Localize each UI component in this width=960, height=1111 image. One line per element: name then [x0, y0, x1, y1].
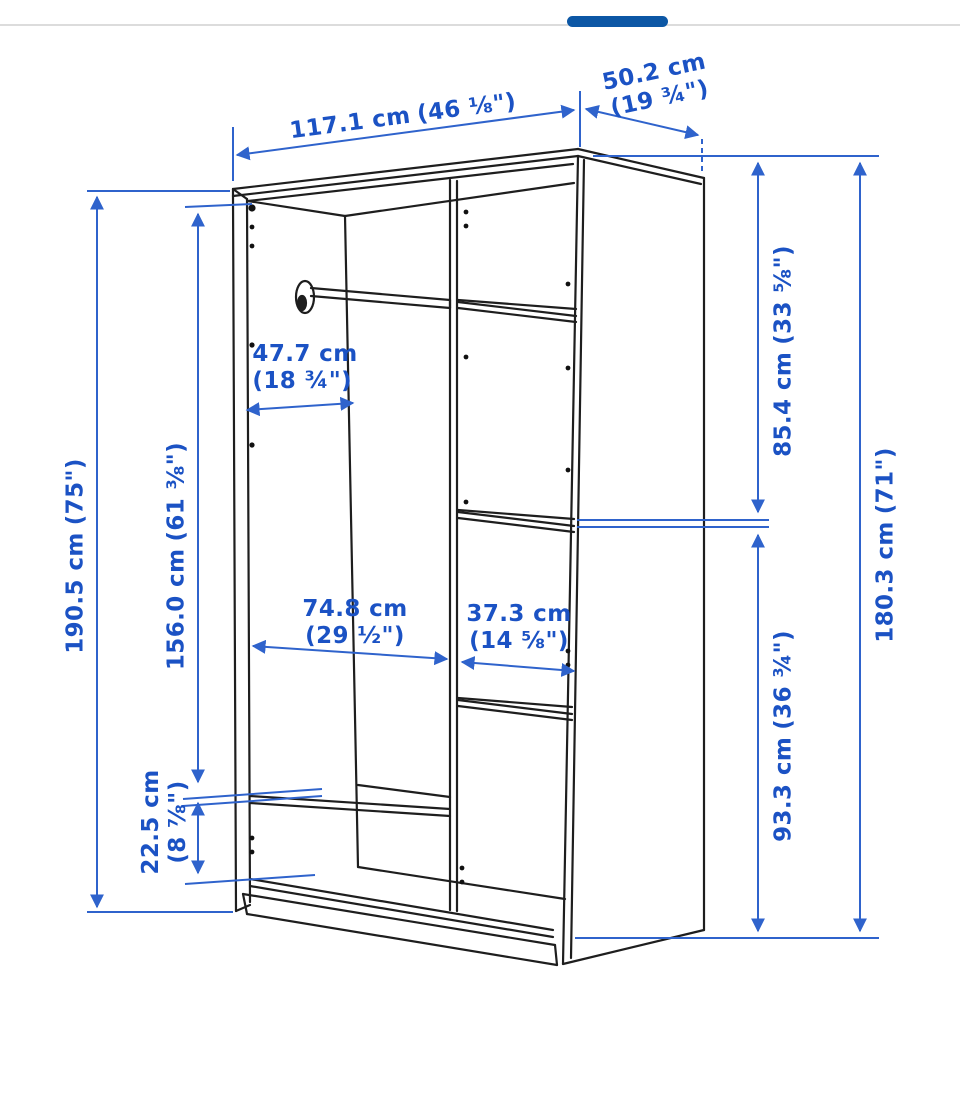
shelf-top	[458, 300, 576, 322]
dim-label-side-height: 180.3 cm(71")	[872, 447, 899, 643]
wardrobe-outline	[233, 149, 704, 965]
shelf-middle	[458, 510, 574, 532]
dim-label-right-section-width: 37.3 cm (14 ⅝")	[466, 601, 571, 655]
dim-label-interior-depth: 47.7 cm (18 ¾")	[252, 341, 357, 395]
dim-line-right-section	[462, 662, 574, 671]
dim-label-lower-right-height: 93.3 cm(36 ¾")	[770, 630, 797, 842]
shelf-lower	[458, 698, 572, 720]
product-dimension-page: 117.1 cm(46 ⅛") 50.2 cm (19 ¾") 190.5 cm…	[0, 0, 960, 1111]
dim-label-upper-right-height: 85.4 cm(33 ⅝")	[770, 245, 797, 457]
dim-label-left-section-width: 74.8 cm (29 ½")	[302, 596, 407, 650]
dim-label-total-height: 190.5 cm(75")	[62, 458, 89, 654]
dim-label-bottom-compartment: 22.5 cm (8 ⅞")	[138, 769, 192, 874]
dim-label-interior-height: 156.0 cm(61 ⅜")	[163, 442, 190, 670]
dim-line-interior-depth	[247, 403, 353, 410]
wardrobe-line-drawing	[0, 0, 960, 1111]
